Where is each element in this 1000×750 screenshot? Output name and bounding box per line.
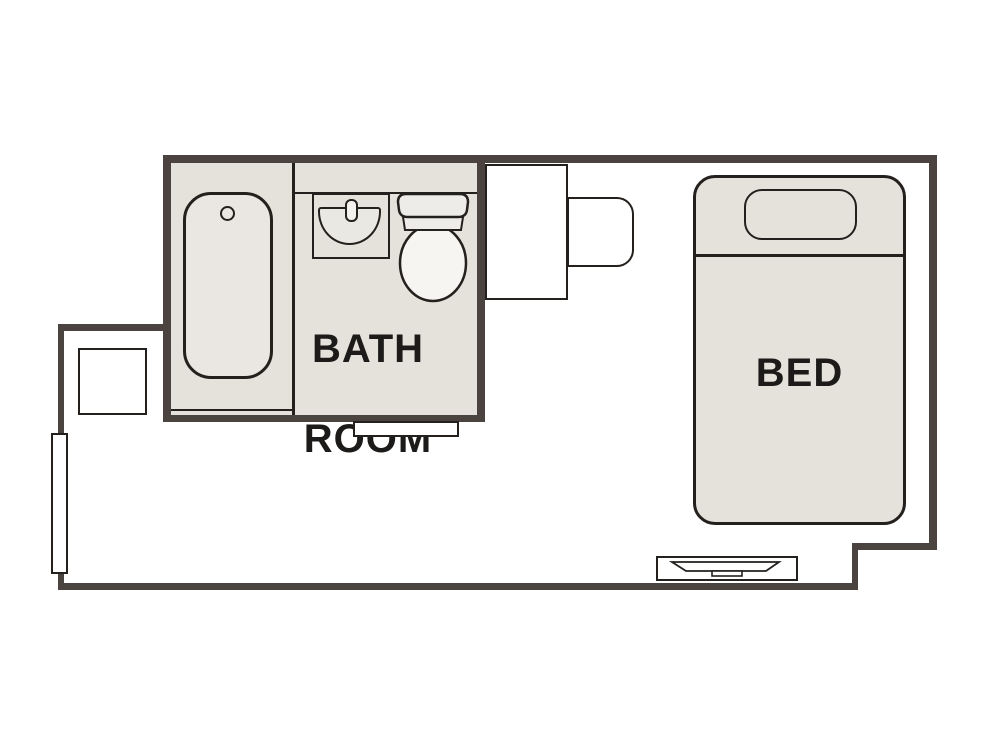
wall-right xyxy=(929,155,937,549)
bed-label: BED xyxy=(696,353,903,393)
side-table xyxy=(78,348,147,415)
bed: BED xyxy=(693,175,906,525)
tv-screen xyxy=(672,562,779,571)
toilet-seat-hinge xyxy=(403,217,463,230)
chair-seat xyxy=(567,197,611,267)
bathroom-wall-left xyxy=(163,155,171,422)
tv-stand xyxy=(712,571,742,576)
toilet-tank xyxy=(398,194,468,217)
floor-plan: BATH ROOM BED xyxy=(0,0,1000,750)
wall-step-horizontal xyxy=(852,543,937,550)
pillow xyxy=(744,189,857,240)
wall-bottom xyxy=(58,583,858,590)
chair-back xyxy=(609,197,634,267)
tub-room-ledge-line xyxy=(169,409,292,411)
faucet xyxy=(345,199,358,222)
bathroom-wall-right xyxy=(477,155,485,422)
wall-top xyxy=(163,155,937,163)
bathroom-label-line1: BATH xyxy=(312,327,424,371)
window xyxy=(51,433,68,574)
desk xyxy=(485,164,568,300)
tv xyxy=(656,556,798,581)
bathtub-drain xyxy=(220,206,235,221)
wall-left-wing-top xyxy=(58,324,163,331)
bed-label-text: BED xyxy=(756,351,843,395)
bathroom-door xyxy=(353,421,459,437)
bed-head-line xyxy=(696,254,903,257)
